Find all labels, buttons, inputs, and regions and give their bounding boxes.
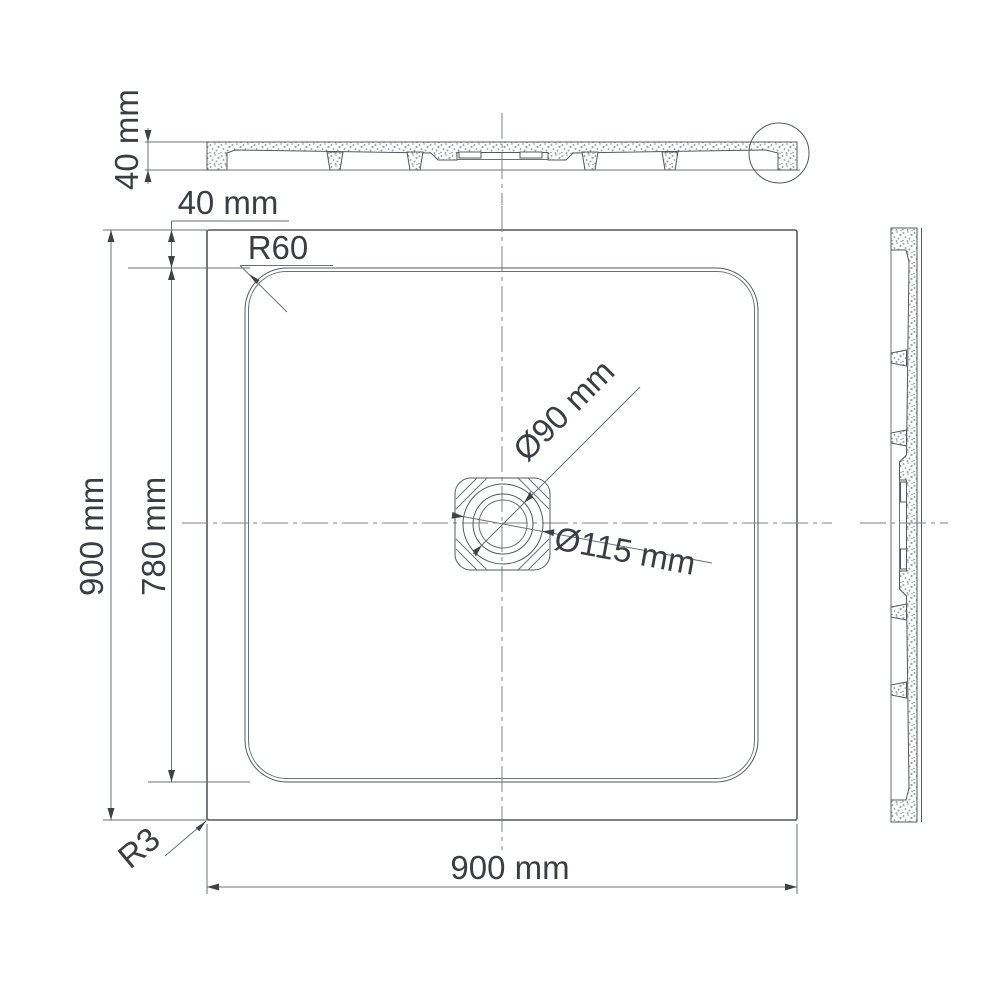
dim-base-corner-radius: R3 (111, 820, 206, 875)
dim-overall-height-label: 900 mm (73, 477, 110, 596)
arrowhead (145, 170, 152, 182)
drain-corner-chamfer (456, 539, 487, 570)
side-drain-step (901, 482, 907, 502)
dim-section-height-label: 40 mm (108, 89, 145, 190)
dim-edge-offset: 40 mm (172, 184, 290, 221)
dim-corner-radius-label: R60 (248, 229, 309, 266)
dim-overall-width: 900 mm (207, 824, 797, 894)
drain-corner-chamfer (456, 478, 477, 499)
arrowhead (108, 808, 115, 820)
section-rib (327, 152, 343, 170)
dim-edge-offset-label: 40 mm (178, 184, 279, 221)
dim-drain-diameter-label: Ø90 mm (506, 352, 622, 468)
section-rib (407, 152, 423, 170)
side-section-view (860, 228, 948, 822)
arrowhead (785, 884, 797, 891)
dim-drain-recess-diameter: Ø115 mm (452, 512, 712, 582)
section-drain-step (520, 152, 542, 158)
dim-corner-radius: R60 (240, 229, 333, 312)
plan-view (182, 206, 832, 850)
drain-corner-chamfer (456, 478, 487, 509)
dim-overall-width-label: 900 mm (450, 849, 569, 886)
section-drain-step (459, 152, 481, 158)
shower-tray-drawing: 40 mm 900 mm 780 mm 40 mm (0, 0, 990, 990)
side-rib (891, 430, 907, 446)
dim-inner-length: 780 mm (128, 221, 250, 782)
arrowhead (207, 884, 219, 891)
side-section-body (891, 228, 917, 822)
arrowhead (168, 268, 175, 280)
side-drain-step (901, 549, 907, 569)
side-rib (891, 682, 907, 698)
arrowhead (168, 770, 175, 782)
dim-section-height: 40 mm (108, 89, 152, 190)
dim-inner-length-label: 780 mm (135, 477, 172, 596)
arrowhead (542, 529, 554, 536)
section-rib (582, 152, 598, 170)
dimensions: 40 mm 900 mm 780 mm 40 mm (73, 89, 797, 894)
dim-drain-recess-diameter-label: Ø115 mm (552, 520, 699, 582)
arrowhead (168, 256, 175, 268)
arrowhead (196, 821, 206, 831)
side-rib (891, 350, 907, 366)
side-rib (891, 604, 907, 620)
arrowhead (108, 230, 115, 242)
arrowhead (452, 512, 464, 519)
technical-drawing-page: 40 mm 900 mm 780 mm 40 mm (0, 0, 990, 990)
section-rib (662, 152, 678, 170)
dim-base-corner-radius-label: R3 (111, 820, 167, 875)
arrowhead (168, 230, 175, 242)
arrowhead (145, 130, 152, 142)
drain-corner-chamfer (518, 539, 549, 570)
